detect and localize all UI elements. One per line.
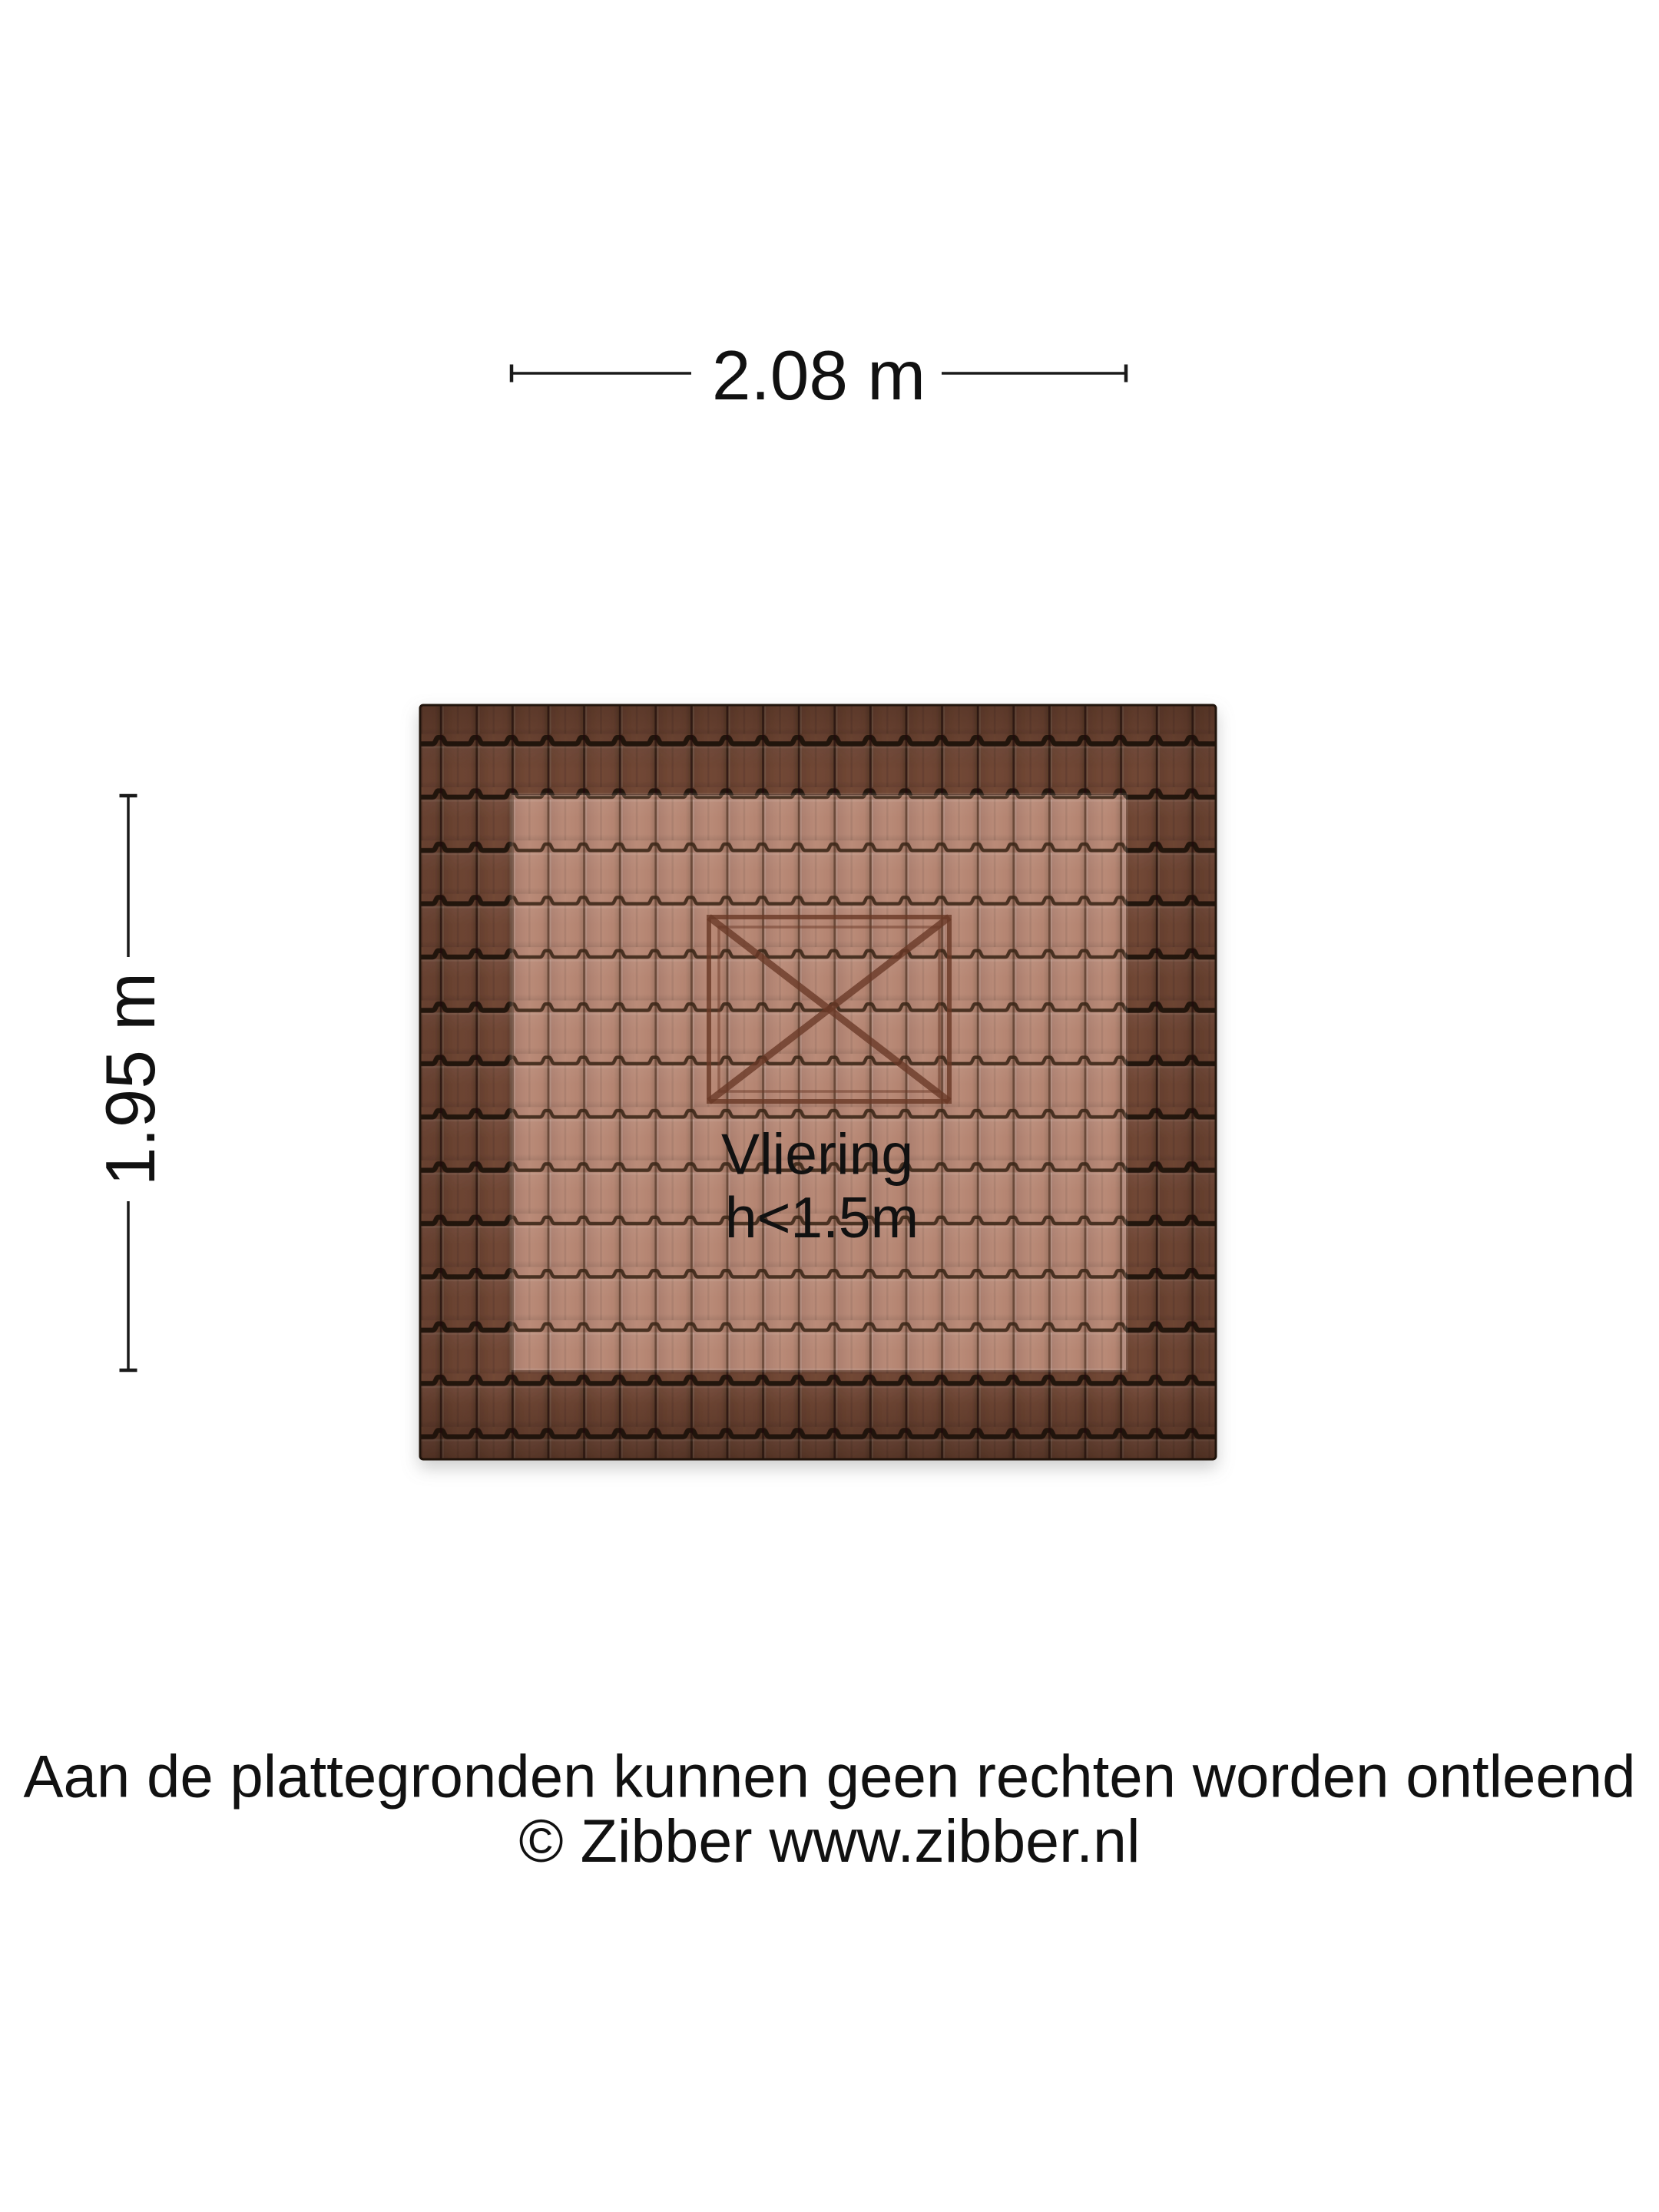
svg-text:Aan de plattegronden kunnen ge: Aan de plattegronden kunnen geen rechten… [24,1743,1636,1810]
svg-text:h<1.5m: h<1.5m [725,1185,919,1250]
svg-text:© Zibber www.zibber.nl: © Zibber www.zibber.nl [518,1806,1140,1875]
svg-text:Vliering: Vliering [721,1122,913,1187]
svg-text:2.08 m: 2.08 m [712,337,926,415]
svg-text:1.95 m: 1.95 m [92,972,170,1186]
